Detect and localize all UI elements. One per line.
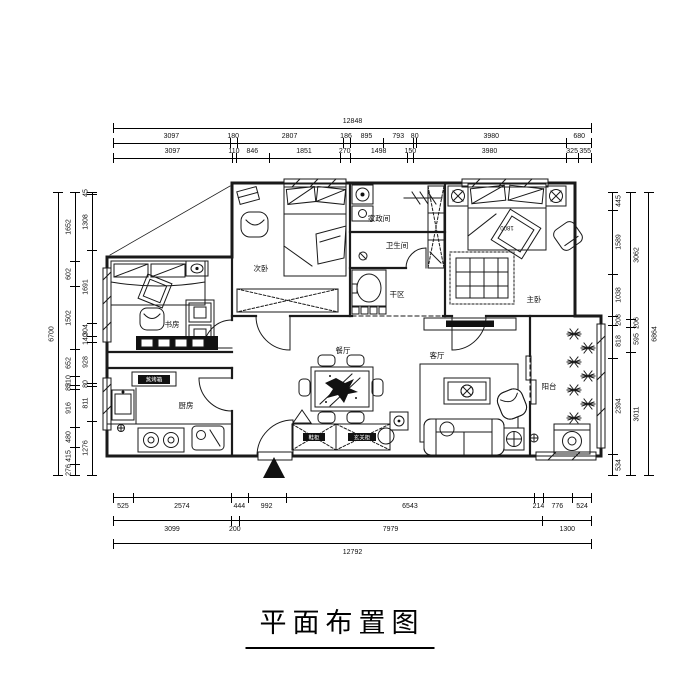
plant-icon — [581, 343, 595, 353]
cutting-board-icon — [192, 426, 224, 450]
dining-table — [311, 367, 373, 411]
window-icon — [103, 268, 111, 342]
plant-icon — [581, 399, 595, 409]
plant-icon — [567, 413, 581, 423]
room-label-laundry: 家政间 — [368, 213, 391, 223]
dining-chair — [347, 355, 364, 366]
window-icon — [462, 179, 548, 187]
room-label-living: 客厅 — [430, 350, 445, 360]
second-bedroom: 次卧 — [237, 184, 346, 312]
floor-plan: 书房 次卧 家政间 — [0, 0, 680, 680]
tv-cabinet — [424, 318, 516, 330]
side-table — [390, 412, 408, 430]
page-title: 平面布置图 — [246, 601, 435, 649]
wardrobe — [237, 289, 338, 312]
dining-chair — [299, 379, 310, 396]
dining-chair — [372, 379, 383, 396]
dining-area: 餐厅 — [299, 346, 383, 423]
room-label-second-bedroom: 次卧 — [254, 263, 269, 273]
window-icon — [536, 452, 596, 460]
room-label-dry-area: 干区 — [390, 290, 405, 299]
desk-chair — [241, 212, 268, 237]
plant-icon — [581, 371, 595, 381]
study-room: 书房 — [111, 261, 218, 350]
dining-chair — [347, 412, 364, 423]
door-kitchen — [199, 378, 232, 411]
armchair — [140, 308, 164, 330]
dry-area: 干区 — [352, 270, 405, 314]
plant-icon — [567, 385, 581, 395]
plant-icon — [567, 329, 581, 339]
washing-machine-icon — [554, 424, 590, 454]
kitchen: 蒸烤箱 厨房 — [107, 372, 232, 452]
armchair — [495, 386, 530, 422]
door-entry — [257, 420, 293, 456]
master-bed: 1800 — [468, 184, 546, 259]
door-bathroom — [406, 248, 426, 268]
room-label-dining: 餐厅 — [336, 346, 351, 355]
master-bedroom: 1800 主卧 — [428, 184, 585, 304]
balcony-sliding-door — [526, 356, 536, 404]
walls — [107, 183, 601, 460]
coffee-table — [444, 378, 490, 404]
drying-rack-icon — [404, 192, 442, 204]
plant-icon — [567, 357, 581, 367]
stool — [378, 428, 394, 444]
dining-chair — [318, 412, 335, 423]
washer-icon — [352, 185, 373, 204]
balcony: 阳台 — [530, 329, 595, 454]
steam-oven-label: 蒸烤箱 — [146, 376, 163, 384]
bathroom: 卫生间 — [359, 240, 441, 263]
door-second-bedroom — [256, 316, 290, 350]
rug — [450, 252, 514, 304]
side-table — [504, 428, 524, 450]
vanity-sink — [352, 270, 386, 306]
stove-icon — [138, 428, 184, 452]
entry-cabinet-label: 玄关柜 — [354, 434, 371, 442]
ceiling-lamp-icon — [448, 186, 468, 206]
floor-drain-icon — [118, 425, 125, 432]
sofa — [424, 419, 504, 455]
entry-area: 鞋柜 玄关柜 — [263, 410, 408, 478]
shoe-cabinet-label: 鞋柜 — [308, 434, 320, 442]
room-label-kitchen: 厨房 — [179, 400, 194, 410]
dining-chair — [318, 355, 335, 366]
bed — [284, 184, 346, 276]
room-label-balcony: 阳台 — [542, 381, 557, 391]
bed-width-label: 1800 — [500, 224, 514, 230]
window-icon — [284, 179, 346, 187]
tap-icon — [530, 434, 538, 442]
rug — [136, 336, 218, 350]
floor-plan-sheet: 12848 30971802807186895793803980680 3097… — [0, 0, 680, 680]
room-label-bathroom: 卫生间 — [386, 240, 409, 250]
living-room: 客厅 — [420, 318, 529, 455]
window-icon — [103, 378, 111, 430]
room-label-master-bedroom: 主卧 — [527, 294, 542, 304]
kitchen-sink — [112, 390, 134, 420]
armchair — [551, 219, 584, 252]
floor-drain-icon — [359, 252, 367, 260]
window-icon — [597, 324, 605, 448]
ceiling-lamp-icon — [546, 186, 566, 206]
room-label-study: 书房 — [165, 319, 180, 329]
